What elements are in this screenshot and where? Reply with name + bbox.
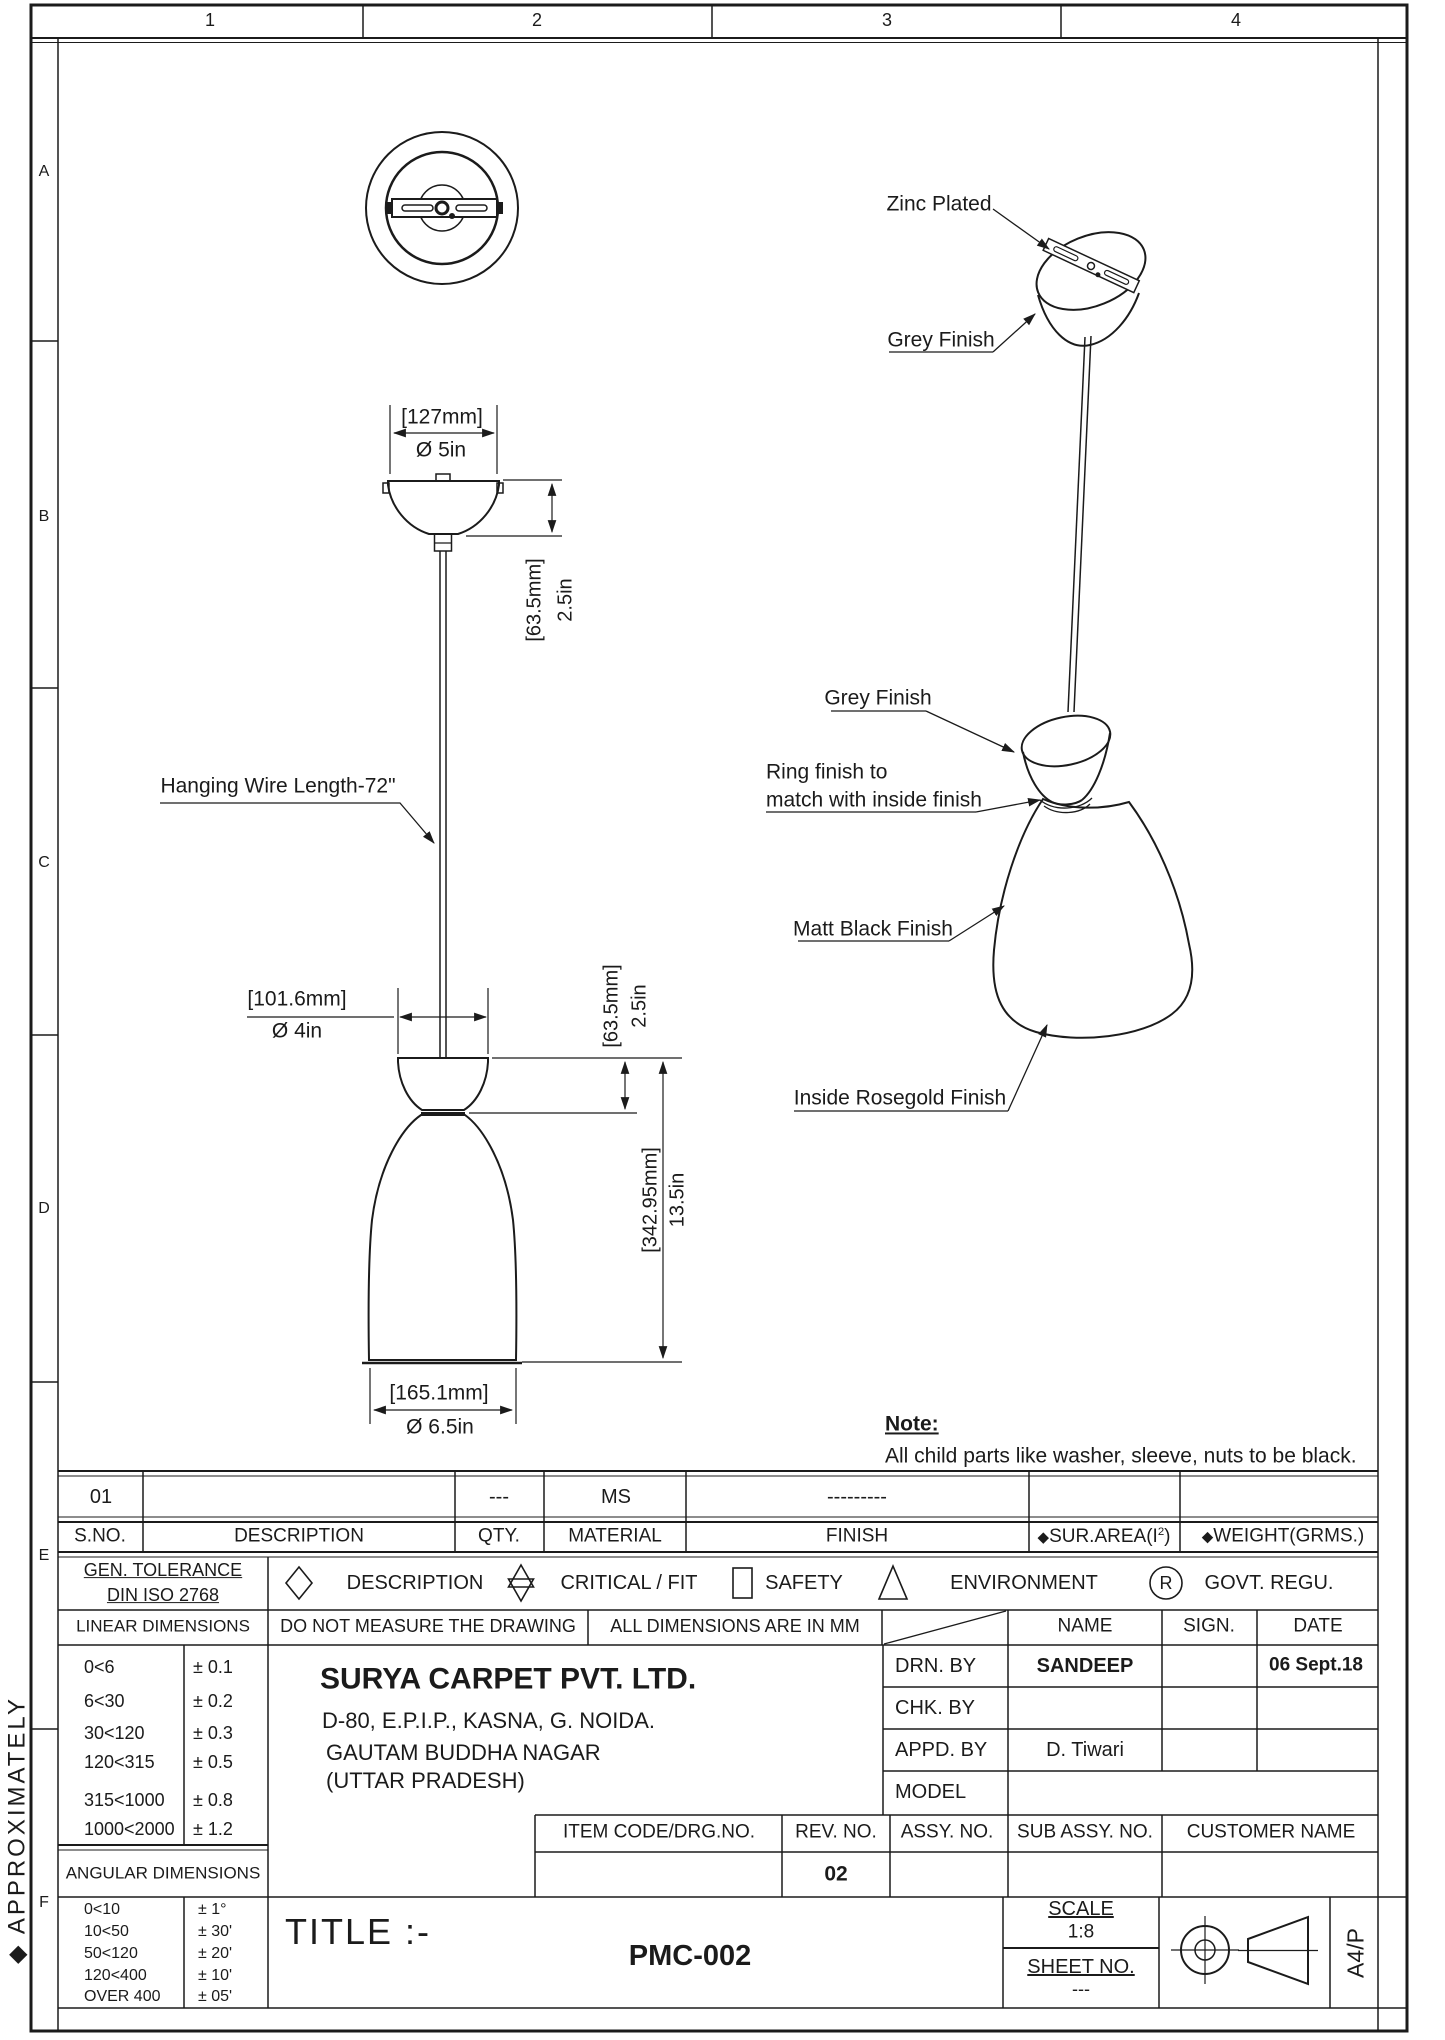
angular-dimensions-title: ANGULAR DIMENSIONS bbox=[66, 1865, 261, 1884]
rev-no-header: REV. NO. bbox=[795, 1823, 877, 1844]
angular-tol-value-2: ± 20' bbox=[198, 1945, 232, 1963]
note-body: All child parts like washer, sleeve, nut… bbox=[885, 1444, 1357, 1467]
drn-by-name: SANDEEP bbox=[1037, 1655, 1134, 1677]
linear-tol-range-3: 120<315 bbox=[84, 1753, 155, 1773]
grid-row-f: F bbox=[39, 1894, 49, 1912]
angular-tol-value-3: ± 10' bbox=[198, 1967, 232, 1985]
company-address-1: D-80, E.P.I.P., KASNA, G. NOIDA. bbox=[322, 1709, 655, 1733]
linear-tol-range-0: 0<6 bbox=[84, 1658, 115, 1678]
part-material: MS bbox=[601, 1486, 631, 1508]
grid-col-2: 2 bbox=[532, 11, 542, 31]
item-code-header: ITEM CODE/DRG.NO. bbox=[563, 1823, 755, 1844]
side-view-pendant bbox=[993, 217, 1192, 1038]
symbol-label-environment: ENVIRONMENT bbox=[950, 1572, 1098, 1594]
note-title: Note: bbox=[885, 1412, 939, 1435]
linear-tol-value-5: ± 1.2 bbox=[193, 1820, 233, 1840]
dimension-lines bbox=[247, 405, 682, 1424]
part-qty: --- bbox=[489, 1486, 509, 1508]
angular-tol-range-2: 50<120 bbox=[84, 1945, 138, 1963]
linear-tol-range-1: 6<30 bbox=[84, 1692, 125, 1712]
grid-col-4: 4 bbox=[1231, 11, 1241, 31]
symbol-r-letter: R bbox=[1160, 1574, 1173, 1594]
appd-by-name: D. Tiwari bbox=[1046, 1739, 1124, 1761]
header-qty: QTY. bbox=[478, 1527, 520, 1548]
part-sno: 01 bbox=[90, 1486, 112, 1508]
margin-note: ◆ APPROXIMATELY bbox=[3, 1696, 32, 1964]
linear-tol-value-0: ± 0.1 bbox=[193, 1658, 233, 1678]
linear-tol-range-2: 30<120 bbox=[84, 1724, 145, 1744]
symbol-label-description: DESCRIPTION bbox=[347, 1572, 484, 1594]
angular-tol-range-3: 120<400 bbox=[84, 1967, 147, 1985]
sheet-border bbox=[31, 5, 1407, 2031]
angular-tol-range-0: 0<10 bbox=[84, 1901, 120, 1919]
header-date: DATE bbox=[1293, 1617, 1342, 1638]
symbol-label-safety: SAFETY bbox=[765, 1572, 843, 1594]
header-description: DESCRIPTION bbox=[234, 1527, 364, 1548]
rev-no-value: 02 bbox=[824, 1862, 847, 1885]
triangle-icon bbox=[879, 1566, 907, 1599]
grid-col-1: 1 bbox=[205, 11, 215, 31]
callout-grey-finish-top: Grey Finish bbox=[887, 328, 994, 351]
gen-tolerance-line1: GEN. TOLERANCE bbox=[84, 1561, 242, 1581]
diamond-bullet-icon: ◆ bbox=[1038, 1529, 1050, 1546]
grid-row-b: B bbox=[39, 508, 50, 526]
grid-row-e: E bbox=[39, 1547, 50, 1565]
linear-dimensions-title: LINEAR DIMENSIONS bbox=[76, 1618, 250, 1637]
company-address-2: GAUTAM BUDDHA NAGAR bbox=[326, 1741, 601, 1765]
front-view-pendant bbox=[362, 474, 522, 1363]
dim-shade-h-mm: [342.95mm] bbox=[640, 1147, 663, 1253]
dim-canopy-h-mm: [63.5mm] bbox=[524, 558, 547, 641]
gen-tolerance-line2: DIN ISO 2768 bbox=[107, 1586, 219, 1606]
drn-by-date: 06 Sept.18 bbox=[1269, 1656, 1363, 1677]
sheet-no-label: SHEET NO. bbox=[1027, 1956, 1134, 1978]
grid-row-d: D bbox=[38, 1200, 50, 1218]
dim-holder-dia-mm: [101.6mm] bbox=[247, 987, 346, 1010]
scale-value: 1:8 bbox=[1068, 1923, 1094, 1944]
grid-row-c: C bbox=[38, 854, 50, 872]
header-sur-area: ◆SUR.AREA(I2) bbox=[1038, 1526, 1171, 1548]
diamond-icon bbox=[286, 1567, 312, 1599]
scale-label: SCALE bbox=[1048, 1898, 1114, 1920]
company-name: SURYA CARPET PVT. LTD. bbox=[320, 1663, 696, 1696]
star-down-icon bbox=[509, 1579, 534, 1601]
header-name: NAME bbox=[1058, 1617, 1113, 1638]
linear-tol-value-1: ± 0.2 bbox=[193, 1692, 233, 1712]
grid-col-3: 3 bbox=[882, 11, 892, 31]
linear-tol-value-2: ± 0.3 bbox=[193, 1724, 233, 1744]
do-not-measure-label: DO NOT MEASURE THE DRAWING bbox=[280, 1617, 576, 1637]
callout-inside-rosegold: Inside Rosegold Finish bbox=[794, 1086, 1006, 1109]
dim-canopy-h-in: 2.5in bbox=[555, 578, 578, 621]
callout-ring-finish-line1: Ring finish to bbox=[766, 760, 887, 783]
linear-tol-value-3: ± 0.5 bbox=[193, 1753, 233, 1773]
grid-row-a: A bbox=[39, 163, 50, 181]
dim-shade-dia-in: Ø 6.5in bbox=[406, 1415, 474, 1438]
dim-canopy-dia-mm: [127mm] bbox=[401, 405, 483, 428]
projection-symbol-icon bbox=[1171, 1916, 1318, 1984]
paper-size-label: A4/P bbox=[1343, 1928, 1370, 1978]
dim-holder-h-in: 2.5in bbox=[629, 984, 652, 1027]
square-icon bbox=[733, 1568, 752, 1598]
callout-grey-finish-mid: Grey Finish bbox=[824, 686, 931, 709]
header-material: MATERIAL bbox=[568, 1527, 662, 1548]
dim-shade-dia-mm: [165.1mm] bbox=[389, 1381, 488, 1404]
angular-tol-value-0: ± 1° bbox=[198, 1901, 227, 1919]
angular-tol-value-4: ± 05' bbox=[198, 1988, 232, 2006]
header-finish: FINISH bbox=[826, 1527, 888, 1548]
dim-canopy-dia-in: Ø 5in bbox=[416, 438, 466, 461]
callout-hanging-wire: Hanging Wire Length-72" bbox=[160, 774, 395, 797]
dim-shade-h-in: 13.5in bbox=[667, 1173, 690, 1228]
linear-tol-value-4: ± 0.8 bbox=[193, 1791, 233, 1811]
star-up-icon bbox=[509, 1565, 534, 1587]
title-label: TITLE :- bbox=[285, 1912, 431, 1952]
top-view-canopy bbox=[366, 132, 518, 284]
callout-ring-finish-line2: match with inside finish bbox=[766, 788, 982, 811]
sub-assy-no-header: SUB ASSY. NO. bbox=[1017, 1823, 1153, 1844]
customer-name-header: CUSTOMER NAME bbox=[1187, 1823, 1356, 1844]
drn-by-label: DRN. BY bbox=[895, 1655, 976, 1677]
part-finish: --------- bbox=[827, 1486, 887, 1508]
sheet-no-value: --- bbox=[1072, 1980, 1090, 2000]
angular-tol-range-4: OVER 400 bbox=[84, 1988, 160, 2006]
callout-matt-black: Matt Black Finish bbox=[793, 917, 953, 940]
symbol-label-govt-regu: GOVT. REGU. bbox=[1205, 1572, 1334, 1594]
linear-tol-range-5: 1000<2000 bbox=[84, 1820, 175, 1840]
company-address-3: (UTTAR PRADESH) bbox=[326, 1769, 525, 1793]
angular-tol-value-1: ± 30' bbox=[198, 1923, 232, 1941]
chk-by-label: CHK. BY bbox=[895, 1697, 975, 1719]
all-dimensions-label: ALL DIMENSIONS ARE IN MM bbox=[610, 1617, 859, 1637]
angular-tol-range-1: 10<50 bbox=[84, 1923, 129, 1941]
diamond-bullet-icon: ◆ bbox=[1202, 1529, 1214, 1546]
model-label: MODEL bbox=[895, 1781, 966, 1803]
dim-holder-dia-in: Ø 4in bbox=[272, 1019, 322, 1042]
assy-no-header: ASSY. NO. bbox=[901, 1823, 994, 1844]
dim-holder-h-mm: [63.5mm] bbox=[601, 964, 624, 1047]
appd-by-label: APPD. BY bbox=[895, 1739, 987, 1761]
symbol-label-critical-fit: CRITICAL / FIT bbox=[560, 1572, 697, 1594]
header-sign: SIGN. bbox=[1183, 1617, 1235, 1638]
header-weight: ◆WEIGHT(GRMS.) bbox=[1202, 1527, 1364, 1548]
header-sno: S.NO. bbox=[74, 1527, 126, 1548]
drawing-sheet: 1 2 3 4 A B C D E F ◆ APPROXIMATELY A4/P… bbox=[0, 0, 1445, 2040]
linear-tol-range-4: 315<1000 bbox=[84, 1791, 165, 1811]
callout-zinc-plated: Zinc Plated bbox=[886, 192, 991, 215]
drawing-number: PMC-002 bbox=[629, 1941, 752, 1973]
